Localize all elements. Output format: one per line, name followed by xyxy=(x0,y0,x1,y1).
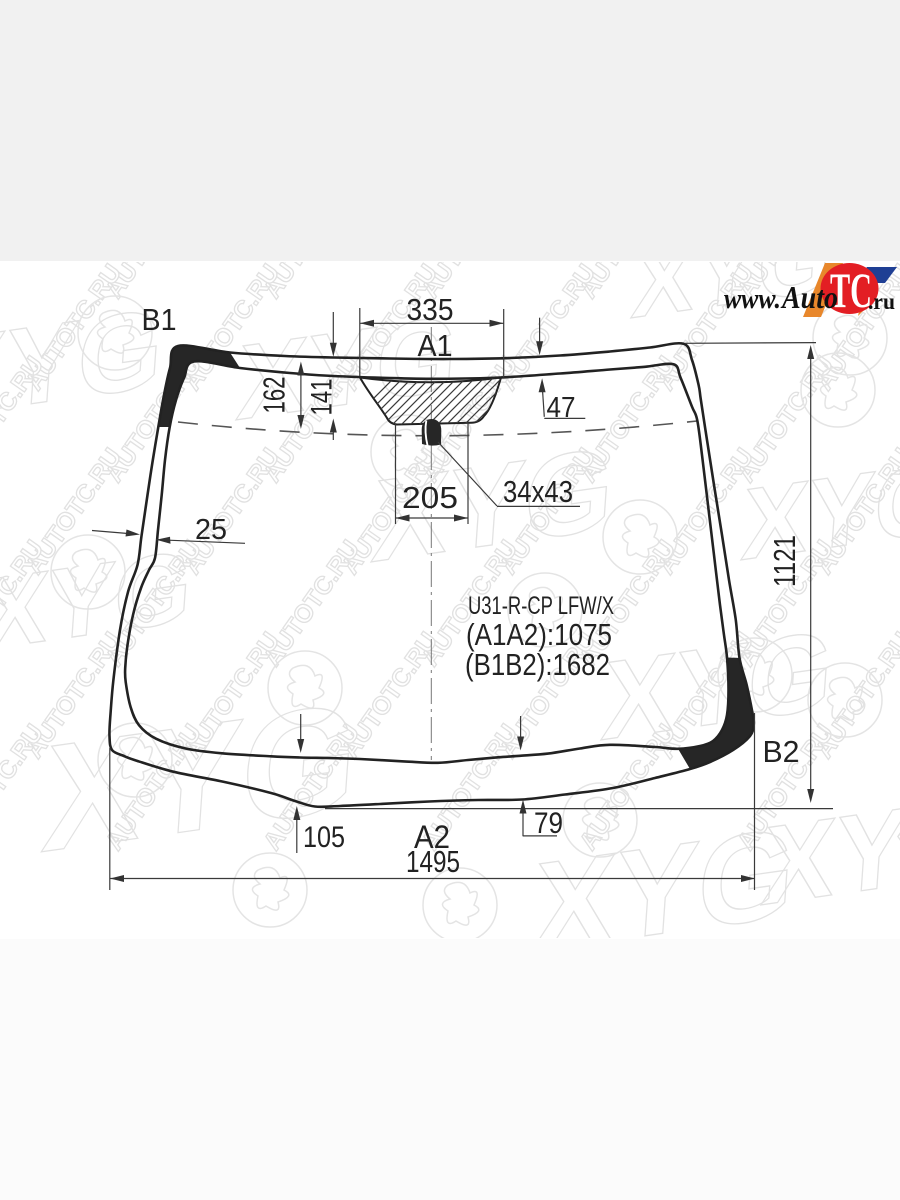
svg-text:47: 47 xyxy=(547,392,576,424)
svg-text:www.: www. xyxy=(724,284,781,315)
svg-text:A1: A1 xyxy=(418,328,453,363)
svg-text:B1: B1 xyxy=(142,302,177,337)
svg-text:(B1B2):1682: (B1B2):1682 xyxy=(465,647,610,682)
svg-text:25: 25 xyxy=(195,514,227,546)
svg-text:79: 79 xyxy=(534,807,563,840)
svg-text:1121: 1121 xyxy=(767,535,802,587)
svg-text:1495: 1495 xyxy=(406,844,460,879)
svg-text:162: 162 xyxy=(257,377,292,414)
svg-text:141: 141 xyxy=(306,379,339,416)
svg-text:34x43: 34x43 xyxy=(503,474,573,509)
svg-text:U31-R-CP LFW/X: U31-R-CP LFW/X xyxy=(468,592,614,620)
svg-text:.ru: .ru xyxy=(868,289,895,314)
svg-text:205: 205 xyxy=(402,480,458,515)
svg-text:Auto: Auto xyxy=(780,279,838,315)
svg-text:335: 335 xyxy=(407,292,454,327)
svg-text:105: 105 xyxy=(303,821,345,854)
svg-text:B2: B2 xyxy=(763,734,800,769)
